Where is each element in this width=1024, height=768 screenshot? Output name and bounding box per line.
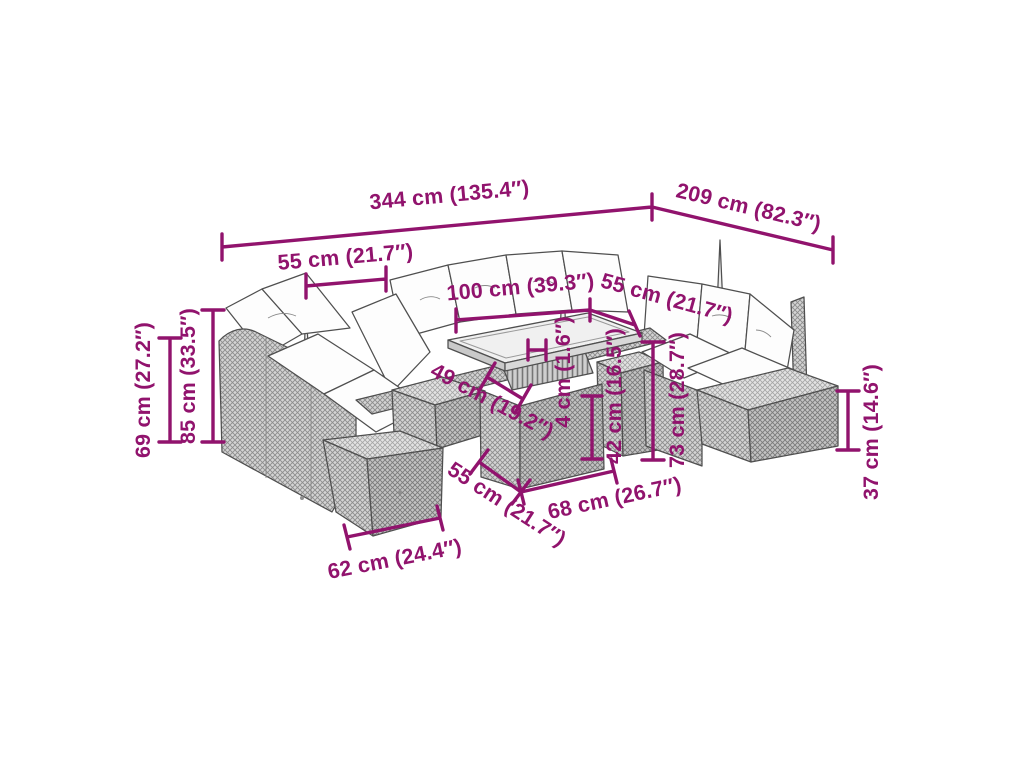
dim-stool-height [837,391,859,450]
dim-label-overall-width: 344 cm (135.4″) [368,176,530,215]
ottoman-side [367,448,443,536]
dim-label-stool-height: 37 cm (14.6″) [859,364,883,500]
dimension-diagram-page: 344 cm (135.4″) 209 cm (82.3″) 55 cm (21… [0,0,1024,768]
dim-label-table-height: 73 cm (28.7″) [665,332,689,468]
dim-label-tabletop-thickness: 4 cm (1.6″) [551,316,575,428]
dim-label-arm-height: 69 cm (27.2″) [131,322,155,458]
dim-label-back-height: 85 cm (33.5″) [176,308,200,444]
sofa-set-dimension-diagram: 344 cm (135.4″) 209 cm (82.3″) 55 cm (21… [0,0,1024,768]
dim-label-seat-width-back: 55 cm (21.7″) [277,239,415,275]
dim-label-table-leg-height: 42 cm (16.5″) [602,328,626,464]
dim-label-overall-depth: 209 cm (82.3″) [674,178,824,236]
dim-label-stool-width: 62 cm (24.4″) [326,534,464,584]
